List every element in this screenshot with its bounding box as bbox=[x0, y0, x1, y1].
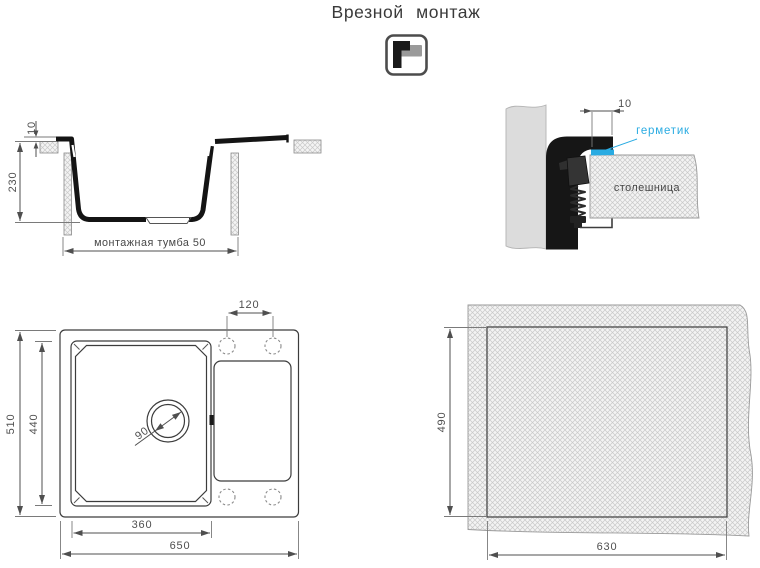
dim-overall-depth: 510 bbox=[5, 414, 17, 435]
sink-outline bbox=[60, 330, 299, 517]
sink-drainboard-profile bbox=[215, 138, 287, 142]
tap-hole bbox=[265, 338, 281, 354]
label-sealant: герметик bbox=[636, 125, 690, 137]
dim-overhang: 10 bbox=[618, 98, 632, 110]
clamp-wedge bbox=[567, 156, 589, 186]
detail-view: 10 герметик столешница bbox=[506, 98, 699, 250]
drain-recess bbox=[146, 218, 191, 224]
dim-depth: 230 bbox=[7, 172, 19, 193]
top-view: 90 120 510 440 360 650 bbox=[5, 299, 299, 559]
bowl-inner-rim bbox=[76, 346, 207, 502]
tap-hole bbox=[219, 338, 235, 354]
drainboard-outline bbox=[214, 361, 291, 481]
section-view: 230 10 монтажная тумба 50 bbox=[7, 121, 321, 256]
dim-bowl-depth: 440 bbox=[28, 414, 40, 435]
bowl-outer-rim bbox=[71, 341, 211, 506]
dim-cutout-width: 630 bbox=[597, 541, 618, 553]
dim-drain-diameter: 90 bbox=[133, 425, 151, 443]
label-cabinet: монтажная тумба 50 bbox=[94, 237, 206, 249]
countertop-right-section bbox=[294, 140, 321, 153]
cutout-view: 490 630 bbox=[436, 305, 752, 560]
inset-mount-icon bbox=[387, 36, 427, 75]
sink-wall-section bbox=[506, 105, 546, 249]
technical-drawing: 230 10 монтажная тумба 50 bbox=[0, 0, 760, 568]
dim-overall-width: 650 bbox=[170, 540, 191, 552]
dim-cutout-depth: 490 bbox=[436, 412, 448, 433]
dim-bowl-width: 360 bbox=[132, 519, 153, 531]
tap-hole bbox=[219, 489, 235, 505]
cabinet-wall-right bbox=[231, 153, 239, 235]
countertop-left-section bbox=[40, 142, 58, 154]
clamp-bolt-head bbox=[570, 216, 586, 223]
overflow-slot bbox=[210, 415, 214, 425]
sink-bowl-right-profile bbox=[189, 146, 212, 220]
label-countertop: столешница bbox=[614, 182, 680, 194]
diagram-page: Врезной монтаж bbox=[0, 0, 760, 568]
dim-hole-spacing: 120 bbox=[239, 299, 260, 311]
dim-rim-height: 10 bbox=[26, 121, 38, 135]
tap-hole bbox=[265, 489, 281, 505]
countertop-panel bbox=[468, 305, 752, 536]
